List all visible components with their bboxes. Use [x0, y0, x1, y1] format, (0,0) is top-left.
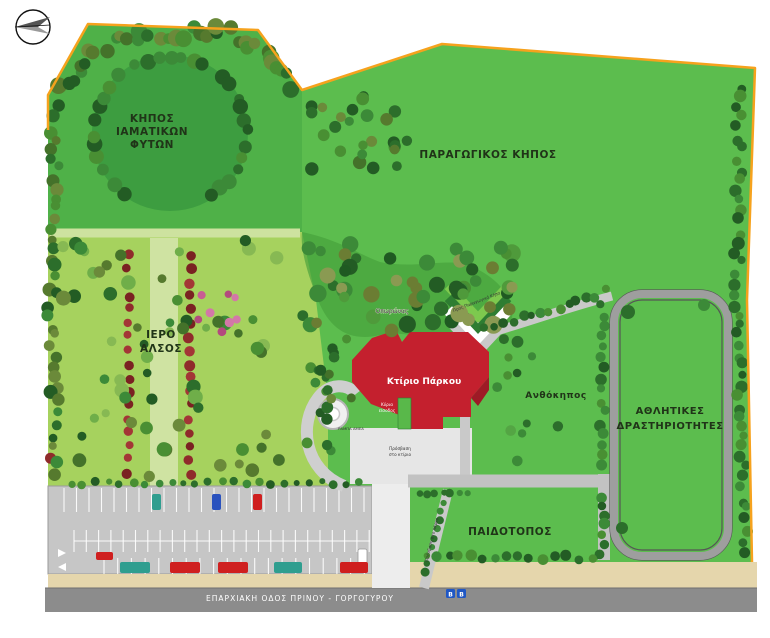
bus-stop-label: B — [459, 592, 464, 599]
label-main-entrance: είσοδος — [379, 408, 396, 413]
bus-stop-label: B — [448, 592, 453, 599]
car — [212, 494, 221, 510]
label-sports-area: ΑΘΛΗΤΙΚΕΣ — [636, 406, 705, 417]
label-playground: ΠΑΙΔΟΤΟΠΟΣ — [468, 526, 552, 538]
car — [358, 549, 367, 564]
site-plan-map: B B ΚΗΠΟΣ ΙΑΜΑΤΙΚΩΝ ΦΥΤΩΝ ΠΑΡΑΓΩΓΙΚΟΣ ΚΗ… — [0, 0, 770, 638]
car — [253, 494, 262, 510]
parking-lot — [48, 486, 372, 574]
label-ramp: ΡΑΜΠΑ ΑΜΕΑ — [338, 426, 364, 431]
label-provincial-road: ΕΠΑΡΧΙΑΚΗ ΟΔΟΣ ΠΡΙΝΟΥ - ΓΟΡΓΟΓΥΡΟΥ — [206, 594, 394, 603]
bus — [274, 562, 302, 573]
building-green-roof — [398, 398, 411, 429]
north-compass-icon — [15, 10, 50, 44]
label-orchard: Οπωρώνας — [375, 308, 408, 315]
label-medicinal-garden: ΦΥΤΩΝ — [130, 139, 174, 151]
label-building-access: Πρόσβαση — [389, 446, 411, 451]
label-medicinal-garden: ΙΑΜΑΤΙΚΩΝ — [116, 126, 188, 138]
site-plan-page: B B ΚΗΠΟΣ ΙΑΜΑΤΙΚΩΝ ΦΥΤΩΝ ΠΑΡΑΓΩΓΙΚΟΣ ΚΗ… — [0, 0, 770, 638]
sidewalk-right — [410, 562, 757, 588]
label-flower-garden: Ανθόκηπος — [525, 390, 586, 401]
bus — [340, 562, 368, 573]
label-sacred-grove: ΑΛΣΟΣ — [140, 343, 182, 355]
label-medicinal-garden: ΚΗΠΟΣ — [130, 113, 174, 125]
bus — [120, 562, 150, 573]
label-sacred-grove: ΙΕΡΟ — [146, 329, 176, 341]
label-park-building: Κτίριο Πάρκου — [387, 376, 461, 387]
car — [152, 494, 161, 510]
sidewalk-left — [48, 574, 372, 588]
car — [96, 552, 113, 560]
label-productive-garden: ΠΑΡΑΓΩΓΙΚΟΣ ΚΗΠΟΣ — [419, 149, 556, 161]
bus — [170, 562, 200, 573]
label-sports-area: ΔΡΑΣΤΗΡΙΟΤΗΤΕΣ — [616, 421, 723, 432]
label-main-entrance: Κύρια — [381, 402, 393, 407]
provincial-road — [45, 588, 757, 612]
bus — [218, 562, 248, 573]
label-building-access: στο κτίριο — [389, 452, 412, 457]
